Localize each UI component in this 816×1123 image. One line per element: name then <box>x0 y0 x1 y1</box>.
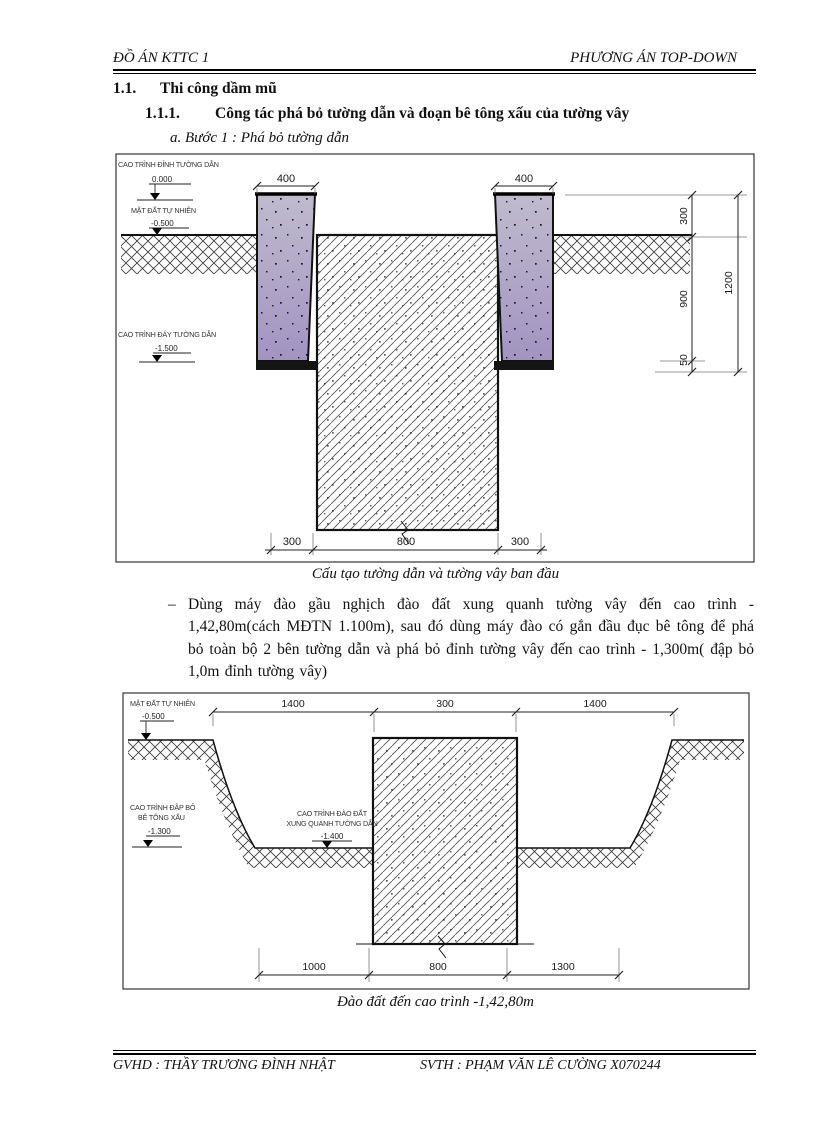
svg-text:XUNG QUANH TƯỜNG DẪN: XUNG QUANH TƯỜNG DẪN <box>286 819 377 828</box>
subsection-heading: 1.1.1.Công tác phá bỏ tường dẫn và đoạn … <box>145 105 629 123</box>
figure2-drawing: 1400 300 1400 MẶT ĐẤT TỰ NHIÊN -0.500 <box>122 692 750 990</box>
body-paragraph: –Dùng máy đào gầu nghịch đào đất xung qu… <box>188 594 754 684</box>
svg-text:-1.400: -1.400 <box>321 832 344 841</box>
svg-text:MẶT ĐẤT TỰ NHIÊN: MẶT ĐẤT TỰ NHIÊN <box>131 205 196 215</box>
header-left-title: ĐỒ ÁN KTTC 1 <box>113 50 209 67</box>
svg-text:300: 300 <box>678 207 690 225</box>
svg-text:1300: 1300 <box>551 961 575 973</box>
svg-text:-1.300: -1.300 <box>148 827 171 836</box>
svg-text:1200: 1200 <box>723 271 735 295</box>
subsection-title: Công tác phá bỏ tường dẫn và đoạn bê tôn… <box>215 105 629 122</box>
footing-band-left <box>256 361 316 370</box>
svg-text:1400: 1400 <box>281 698 305 710</box>
svg-text:-0.500: -0.500 <box>151 219 174 228</box>
svg-text:-1.500: -1.500 <box>155 344 178 353</box>
svg-text:400: 400 <box>277 173 295 185</box>
figure1-drawing: 400 400 CAO TRÌNH ĐỈNH TƯỜNG DẪN 0.000 M… <box>115 153 755 563</box>
svg-text:1400: 1400 <box>583 698 607 710</box>
section-number: 1.1. <box>113 80 160 98</box>
svg-text:900: 900 <box>678 290 690 308</box>
svg-text:50: 50 <box>678 354 690 366</box>
section-heading: 1.1.Thi công dầm mũ <box>113 80 277 98</box>
footer-student: SVTH : PHẠM VĂN LÊ CƯỜNG X070244 <box>420 1058 661 1074</box>
document-page: ĐỒ ÁN KTTC 1 PHƯƠNG ÁN TOP-DOWN 1.1.Thi … <box>0 0 816 1123</box>
svg-text:CAO TRÌNH ĐÁY TƯỜNG DẪN: CAO TRÌNH ĐÁY TƯỜNG DẪN <box>118 330 216 339</box>
svg-text:300: 300 <box>283 536 301 548</box>
svg-text:0.000: 0.000 <box>152 175 173 184</box>
figure1-caption: Cấu tạo tường dẫn và tường vây ban đầu <box>113 566 758 583</box>
step-item-label: a. Bước 1 : Phá bỏ tường dẫn <box>170 130 349 147</box>
svg-text:400: 400 <box>515 173 533 185</box>
svg-text:BÊ TÔNG XẤU: BÊ TÔNG XẤU <box>138 812 185 822</box>
section-title: Thi công dầm mũ <box>160 80 277 97</box>
diaphragm-wall <box>317 235 498 544</box>
header-right-title: PHƯƠNG ÁN TOP-DOWN <box>570 50 737 67</box>
footer-advisor: GVHD : THẦY TRƯƠNG ĐÌNH NHẬT <box>113 1058 335 1074</box>
svg-text:CAO TRÌNH ĐÀO ĐẤT: CAO TRÌNH ĐÀO ĐẤT <box>297 808 368 818</box>
footing-band-right <box>494 361 554 370</box>
guide-wall-right <box>493 194 555 370</box>
svg-text:1000: 1000 <box>302 961 326 973</box>
svg-text:-0.500: -0.500 <box>142 712 165 721</box>
diaphragm-wall <box>356 738 534 958</box>
svg-text:MẶT ĐẤT TỰ NHIÊN: MẶT ĐẤT TỰ NHIÊN <box>130 698 195 708</box>
subsection-number: 1.1.1. <box>145 105 215 123</box>
soil-hatch-left <box>121 236 257 274</box>
svg-text:300: 300 <box>436 698 454 710</box>
svg-text:300: 300 <box>511 536 529 548</box>
svg-text:CAO TRÌNH ĐỈNH TƯỜNG DẪN: CAO TRÌNH ĐỈNH TƯỜNG DẪN <box>118 160 219 169</box>
svg-text:CAO TRÌNH ĐẬP BỎ: CAO TRÌNH ĐẬP BỎ <box>130 803 196 812</box>
soil-hatch-right <box>553 236 690 274</box>
header-rule <box>113 69 756 74</box>
svg-text:800: 800 <box>397 536 415 548</box>
guide-wall-left <box>255 194 317 370</box>
footer-rule <box>113 1050 756 1055</box>
svg-text:800: 800 <box>429 961 447 973</box>
paragraph-text: Dùng máy đào gầu nghịch đào đất xung qua… <box>188 596 754 680</box>
bullet-dash: – <box>168 594 176 616</box>
figure2-caption: Đào đất đến cao trình -1,42,80m <box>113 994 758 1011</box>
